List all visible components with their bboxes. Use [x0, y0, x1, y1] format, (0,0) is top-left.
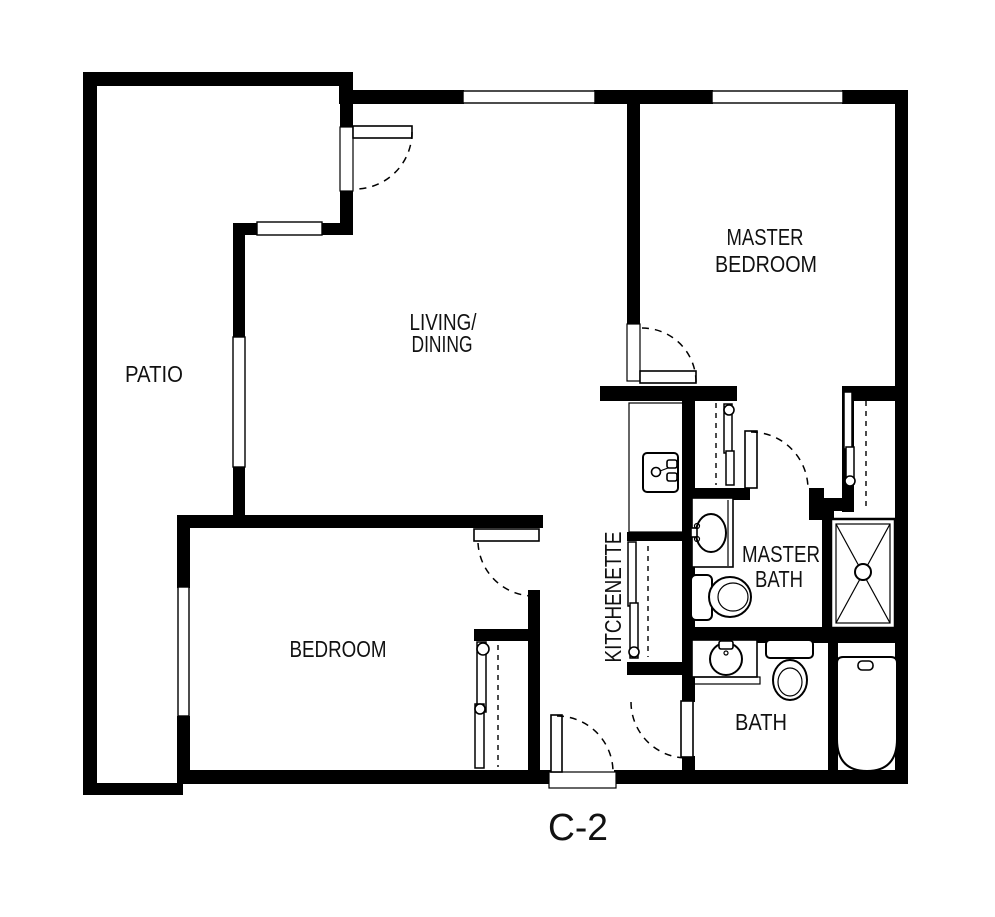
floor-plan-drawing: PATIO LIVING/ DINING MASTER BEDROOM BEDR… — [0, 0, 995, 917]
wall-bedroom-west-a — [177, 528, 190, 588]
wall-step-a — [233, 223, 259, 235]
bedroom-closet-knob-1 — [477, 643, 489, 655]
wall-west-mid-a — [233, 235, 245, 338]
wall-bedroom-west-b — [177, 716, 190, 774]
label-master-bath-line1: MASTER — [742, 541, 820, 567]
label-master-bath-line2: BATH — [755, 566, 803, 592]
wall-hall-bottom-right — [809, 488, 824, 520]
floor-plan-page: PATIO LIVING/ DINING MASTER BEDROOM BEDR… — [0, 0, 995, 917]
hall-closet-left-knob — [724, 405, 734, 415]
entry-door-leaf — [551, 715, 562, 772]
window-living-west — [233, 337, 245, 467]
label-patio: PATIO — [125, 361, 183, 387]
master-bedroom-door-jamb — [627, 324, 640, 381]
kitchenette-sink-drain — [652, 468, 661, 477]
bath-toilet-tank — [766, 640, 813, 658]
wall-bedroom-top — [177, 515, 543, 528]
wall-kitchenette-bottom — [627, 662, 700, 675]
bathtub-outline — [837, 657, 897, 771]
window-bedroom-west — [178, 587, 189, 716]
master-bedroom-door-leaf — [640, 371, 696, 383]
hall-closet-right-panel-1 — [844, 392, 852, 449]
wall-step-b — [320, 223, 353, 235]
window-patio-step — [257, 222, 322, 235]
wall-patio-west — [83, 72, 97, 795]
kitchenette-pantry-panel-1 — [628, 542, 636, 606]
wall-patio-bottom — [83, 783, 183, 795]
bathtub-faucet — [858, 661, 873, 670]
wall-bottom-left — [177, 770, 551, 784]
label-living-dining-line2: DINING — [412, 331, 473, 357]
label-bedroom: BEDROOM — [290, 636, 387, 662]
wall-west-upper-a — [340, 86, 353, 128]
kitchenette-pantry-knob — [629, 647, 639, 657]
label-master-bedroom-line1: MASTER — [727, 224, 804, 250]
patio-door-leaf — [353, 126, 412, 138]
label-master-bedroom-line2: BEDROOM — [715, 251, 817, 277]
master-bath-vanity-sink — [696, 514, 726, 552]
bathtub — [837, 657, 897, 771]
wall-kitchenette-mid — [627, 532, 687, 541]
patio-door-jamb — [340, 127, 353, 191]
master-bath-door-leaf — [745, 431, 757, 488]
shower-drain — [855, 564, 871, 580]
label-kitchenette: KITCHENETTE — [600, 532, 626, 663]
wall-patio-top — [85, 72, 347, 86]
bedroom-door-leaf — [474, 529, 539, 541]
bath-vanity — [689, 640, 760, 684]
wall-living-master-divider — [627, 100, 640, 324]
wall-west-mid-b — [233, 467, 245, 520]
label-bath: BATH — [735, 709, 787, 735]
master-bath-toilet — [691, 575, 751, 620]
wall-top-left — [347, 90, 464, 104]
bath-faucet — [719, 641, 733, 649]
plan-title: C-2 — [548, 807, 608, 849]
window-top-right — [712, 91, 843, 103]
master-bath-vanity — [691, 498, 733, 567]
kitchenette-faucet-handle-1 — [667, 460, 677, 468]
hall-closet-right-knob — [845, 476, 855, 486]
entry-door-threshold — [549, 772, 616, 788]
window-top-left — [463, 91, 595, 103]
wall-bedroom-closet-east — [528, 590, 540, 772]
master-bath-shower — [831, 519, 895, 628]
wall-kitchenette-top — [600, 386, 737, 401]
master-bath-faucet — [691, 528, 697, 537]
hall-closet-left-panel-2 — [726, 451, 734, 485]
wall-bottom-right — [614, 770, 908, 784]
wall-top-mid — [594, 90, 713, 104]
bedroom-closet-knob-2 — [475, 704, 485, 714]
bath-door-leaf — [681, 701, 693, 757]
kitchenette-faucet-handle-2 — [667, 473, 677, 481]
wall-closet-right-bottom — [832, 498, 854, 511]
